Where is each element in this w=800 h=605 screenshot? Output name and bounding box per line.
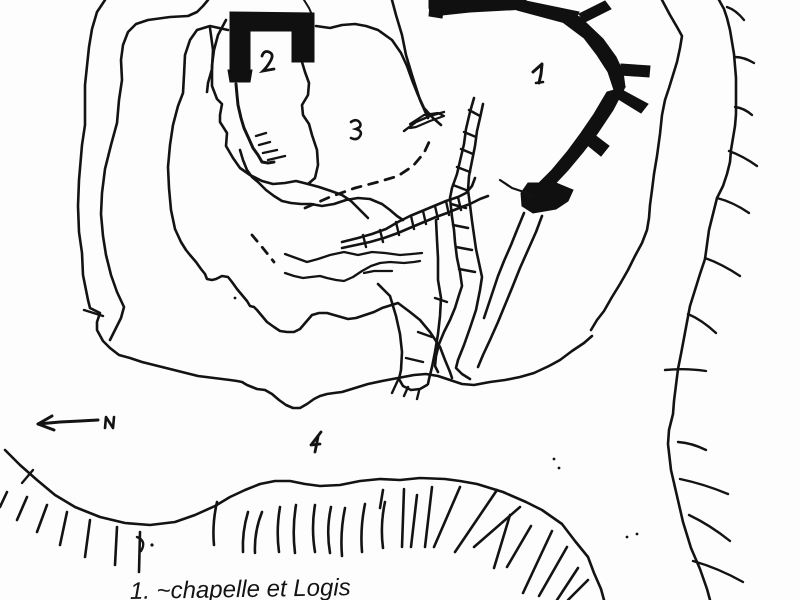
svg-text:1. ~chapelle et Logis: 1. ~chapelle et Logis — [130, 574, 351, 600]
